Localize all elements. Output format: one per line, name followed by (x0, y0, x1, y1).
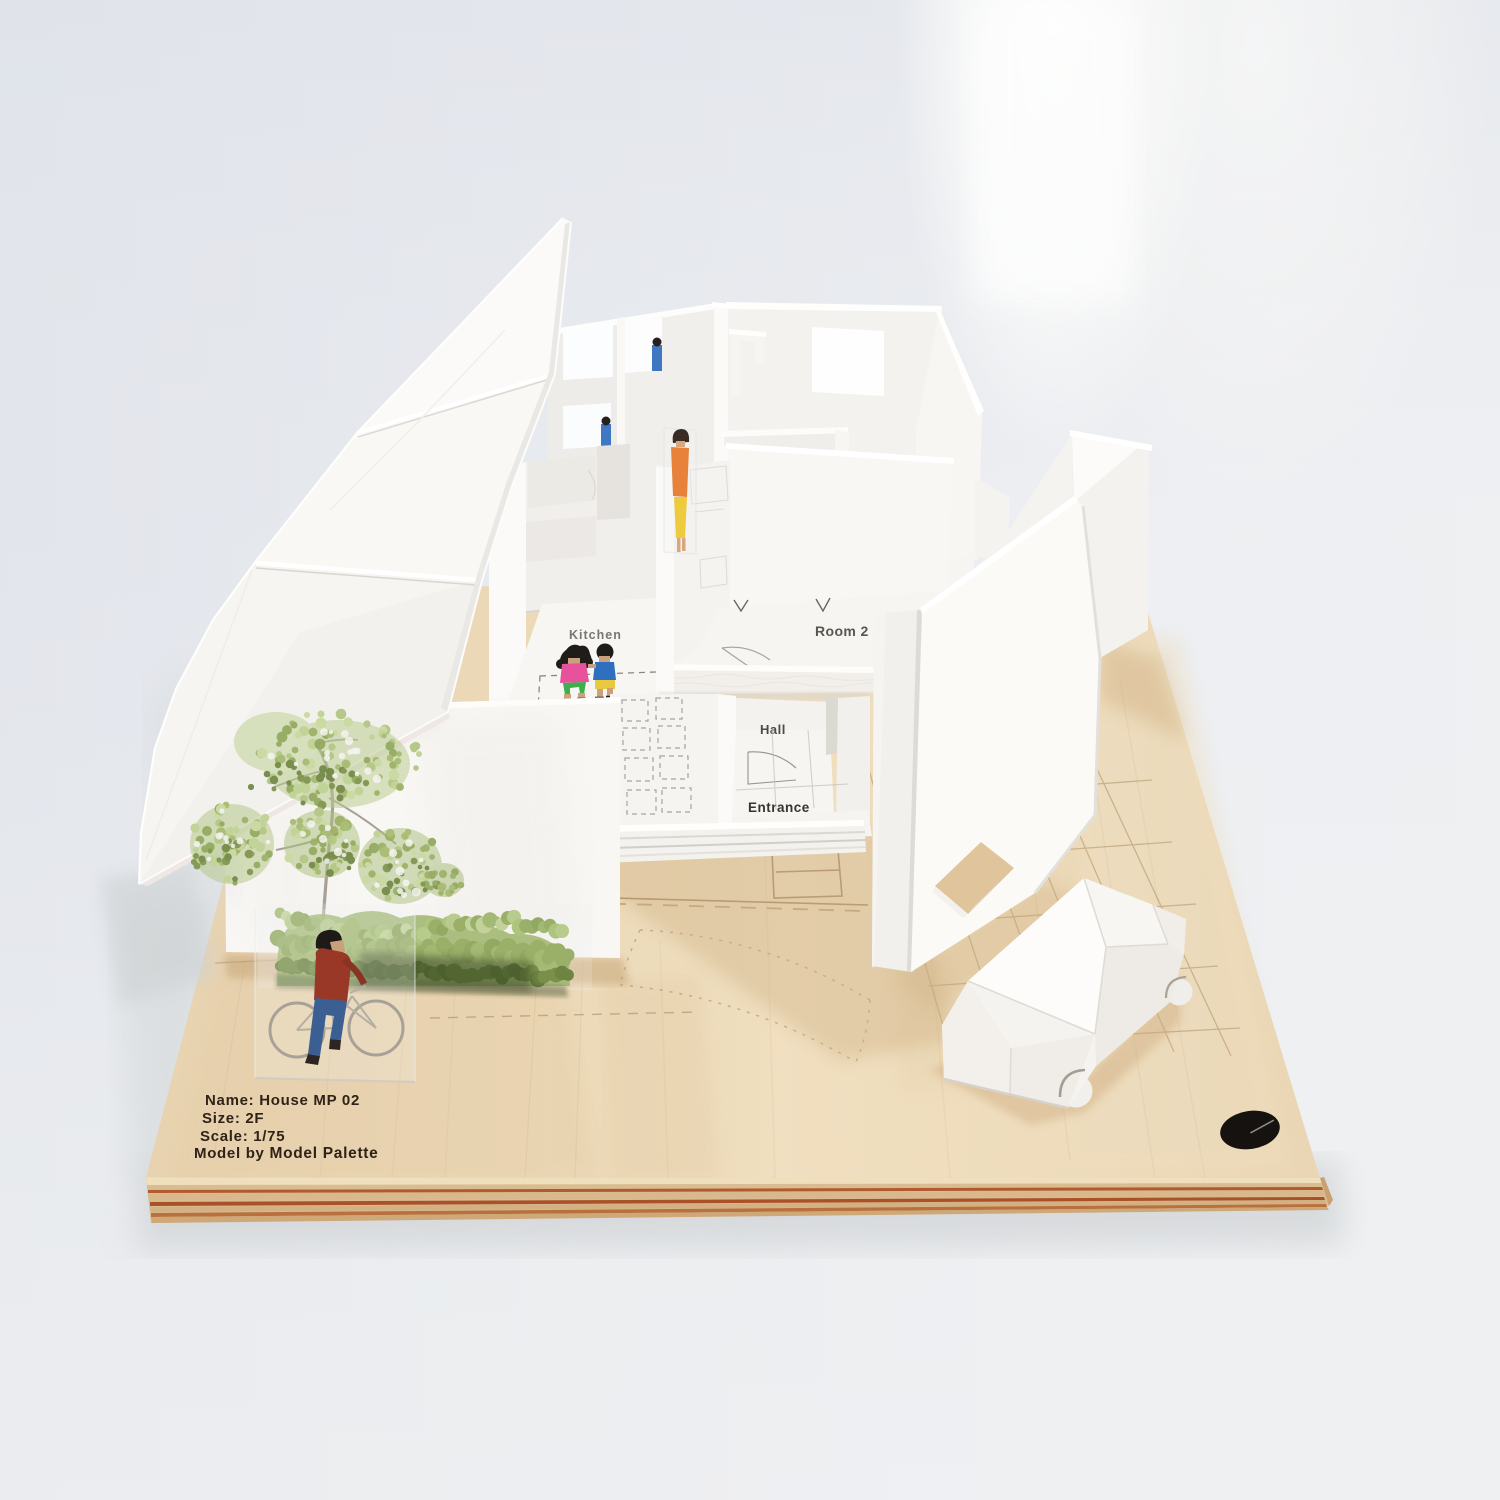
svg-text:Scale: 1/75: Scale: 1/75 (200, 1128, 285, 1145)
svg-text:Kitchen: Kitchen (569, 628, 622, 642)
svg-text:Hall: Hall (760, 722, 786, 737)
svg-text:Size: 2F: Size: 2F (202, 1110, 264, 1127)
svg-text:Name: House MP 02: Name: House MP 02 (205, 1092, 360, 1109)
svg-text:Model by Model Palette: Model by Model Palette (194, 1145, 379, 1162)
svg-text:Room 2: Room 2 (815, 623, 869, 639)
svg-text:Entrance: Entrance (748, 800, 810, 815)
